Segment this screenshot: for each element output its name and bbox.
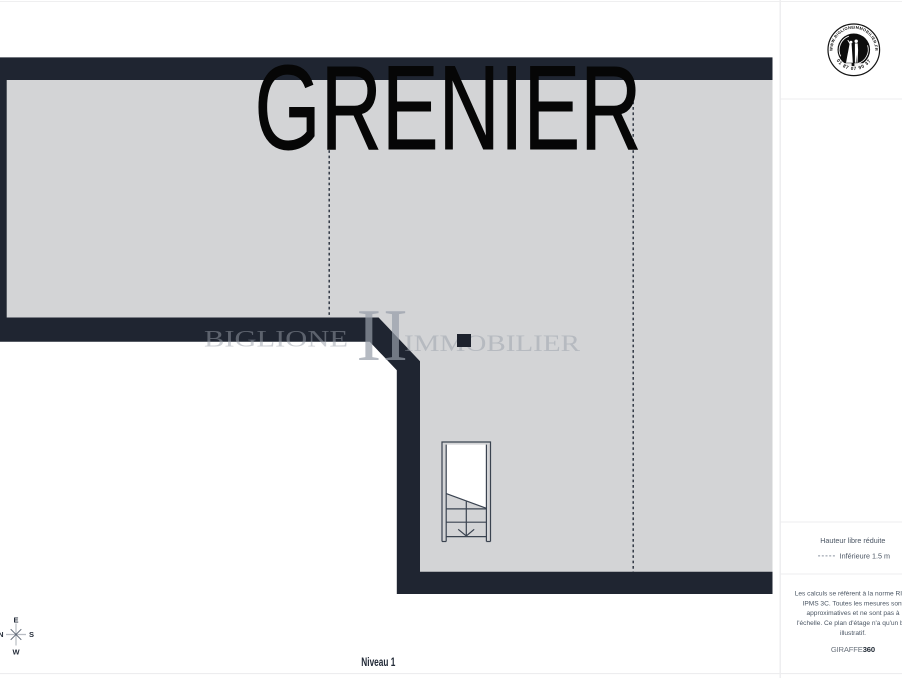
svg-text:Inférieure 1.5 m: Inférieure 1.5 m [840, 551, 890, 560]
svg-text:N: N [0, 630, 4, 639]
svg-text:S: S [29, 630, 34, 639]
svg-text:l'échelle. Ce plan d'étage n'a: l'échelle. Ce plan d'étage n'a qu'un but [797, 620, 902, 627]
svg-text:IPMS 3C. Toutes les mesures so: IPMS 3C. Toutes les mesures sont [802, 600, 902, 607]
svg-text:approximatives et ne sont pas: approximatives et ne sont pas à [806, 610, 899, 617]
svg-text:BIGLIONE: BIGLIONE [204, 327, 348, 352]
svg-text:E: E [13, 616, 18, 625]
svg-text:IMMOBILIER: IMMOBILIER [404, 331, 581, 356]
svg-text:illustratif.: illustratif. [840, 630, 866, 637]
svg-text:Hauteur libre réduite: Hauteur libre réduite [820, 536, 885, 545]
svg-text:Les calculs se réfèrent à la n: Les calculs se réfèrent à la norme RICS [795, 590, 902, 597]
svg-text:GRENIER: GRENIER [255, 41, 642, 175]
svg-text:W: W [12, 648, 20, 657]
svg-text:GIRAFFE360: GIRAFFE360 [831, 645, 875, 654]
svg-text:Niveau 1: Niveau 1 [361, 655, 395, 669]
svg-text:II: II [357, 295, 410, 377]
